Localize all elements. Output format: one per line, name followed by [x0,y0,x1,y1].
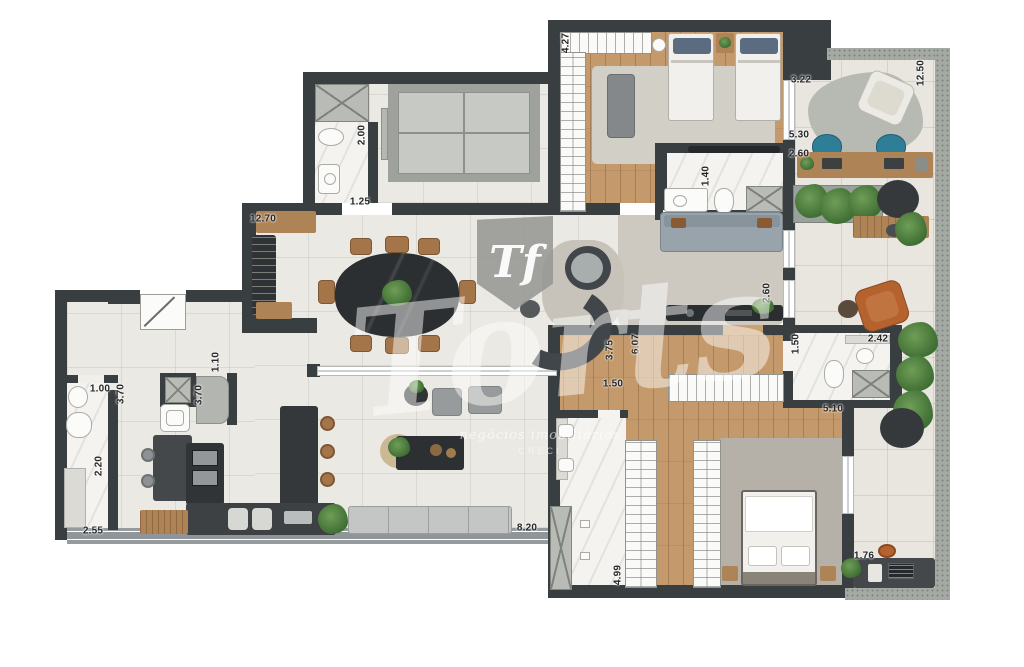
dimension-label: 4.27 [561,33,572,53]
dimension-label: 12.70 [250,214,276,225]
dimension-label: 2.55 [83,526,103,537]
dimension-label: 2.60 [789,149,809,160]
dimension-label: 1.50 [791,334,802,354]
dimension-label: 12.50 [916,60,927,86]
dimension-label: 1.10 [211,352,222,372]
dimension-label: 3.70 [194,385,205,405]
watermark-brand-script: Torts [340,224,724,510]
dimension-label: 2.42 [868,334,888,345]
dimension-label: 2.00 [357,125,368,145]
dimension-label: 1.00 [90,384,110,395]
watermark-tagline: negócios imobiliários [420,428,660,443]
dimension-label: 5.10 [823,404,843,415]
dimension-label: 2.20 [94,456,105,476]
dimension-label: 5.30 [789,130,809,141]
dimension-label: 3.70 [116,384,127,404]
dimension-label: 8.20 [517,523,537,534]
dimension-label: 3.22 [791,75,811,86]
dimension-label: 1.76 [854,551,874,562]
watermark-registry: CRECI [470,446,610,456]
floor-plan: 2.001.2512.704.273.2212.505.301.402.602.… [0,0,1024,667]
dimension-label: 4.99 [613,565,624,585]
dimension-label: 1.40 [701,166,712,186]
dimension-label: 1.25 [350,197,370,208]
